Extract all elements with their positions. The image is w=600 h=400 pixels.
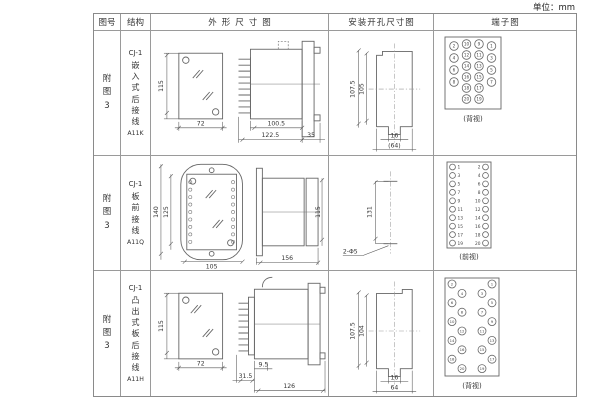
terminal-number: 8 bbox=[453, 79, 456, 84]
terminal-number: 3 bbox=[490, 55, 493, 60]
terminal-number: 6 bbox=[451, 300, 454, 305]
terminal-circle bbox=[483, 189, 489, 195]
header-fig-no: 图号 bbox=[94, 14, 121, 31]
terminal-number: 12 bbox=[460, 328, 465, 333]
structure-label: 凸出式板后接线 bbox=[132, 295, 140, 373]
terminal-number: 8 bbox=[478, 190, 481, 196]
terminal-number: 15 bbox=[480, 347, 485, 352]
dim-front-width: 105 bbox=[206, 263, 218, 270]
terminal-circle bbox=[450, 197, 456, 203]
terminal-circle bbox=[450, 172, 456, 178]
terminal-number: 2 bbox=[478, 164, 481, 170]
terminal-number: 16 bbox=[464, 74, 470, 79]
terminal-number: 5 bbox=[491, 300, 494, 305]
dim-flange-depth: 35 bbox=[307, 132, 315, 139]
terminal-number: 5 bbox=[458, 181, 461, 187]
terminal-number: 4 bbox=[461, 291, 464, 296]
terminal-circle bbox=[450, 189, 456, 195]
dim-overall-width: 64 bbox=[390, 384, 398, 391]
fig-no-label: 附图3 bbox=[103, 193, 112, 233]
header-mounting: 安装开孔尺寸图 bbox=[329, 14, 434, 31]
terminal-number: 16 bbox=[475, 223, 481, 229]
header-structure: 结构 bbox=[121, 14, 151, 31]
terminal-circle bbox=[450, 240, 456, 246]
dim-slot-width: 16 bbox=[390, 375, 398, 382]
terminal-number: 7 bbox=[490, 79, 493, 84]
terminal-number: 6 bbox=[453, 67, 456, 72]
dim-outer-height: 107.5 bbox=[350, 322, 357, 340]
terminal-number: 13 bbox=[490, 338, 495, 343]
terminal-number: 18 bbox=[450, 357, 455, 362]
dim-hole-distance: 131 bbox=[367, 206, 374, 218]
dim-overall-width: (64) bbox=[388, 142, 401, 149]
terminal-number: 11 bbox=[458, 206, 464, 212]
terminal-circle bbox=[450, 231, 456, 237]
fig-no-label: 附图3 bbox=[103, 314, 112, 354]
cell-mounting-row3: 107.5 104 16 64 bbox=[329, 271, 434, 396]
terminal-diagram-a11k: (背视) 2468101214161820911131517191357 bbox=[435, 31, 575, 156]
terminal-view-label: (背视) bbox=[462, 381, 482, 390]
cell-structure-row1: CJ-1 嵌入式后接线 A11K bbox=[121, 31, 151, 156]
dim-total-depth: 156 bbox=[281, 255, 293, 262]
dim-body-depth: 100.5 bbox=[267, 120, 285, 127]
dim-front-width: 72 bbox=[197, 360, 205, 367]
terminal-number: 19 bbox=[458, 240, 464, 246]
terminal-number: 17 bbox=[458, 232, 464, 238]
dim-body-height: 115 bbox=[315, 206, 322, 218]
terminal-number: 10 bbox=[464, 41, 470, 46]
terminal-circle bbox=[483, 164, 489, 170]
terminal-circle bbox=[450, 223, 456, 229]
terminal-number: 7 bbox=[481, 310, 484, 315]
terminal-number: 12 bbox=[464, 52, 470, 57]
terminal-view-label: (背视) bbox=[463, 114, 483, 123]
type-code-label: A11H bbox=[127, 376, 144, 383]
terminal-number: 4 bbox=[453, 55, 456, 60]
cell-outline-row3: 115 72 9.5 31. bbox=[151, 271, 329, 396]
terminal-circle bbox=[450, 181, 456, 187]
terminal-number: 15 bbox=[476, 74, 482, 79]
terminal-circle bbox=[483, 223, 489, 229]
terminal-number: 13 bbox=[458, 215, 464, 221]
fig-no-label: 附图3 bbox=[103, 73, 112, 113]
cell-mounting-row2: 131 2-Φ5 bbox=[329, 156, 434, 271]
terminal-number: 14 bbox=[464, 63, 470, 68]
terminal-circle bbox=[483, 240, 489, 246]
terminal-number: 1 bbox=[490, 43, 493, 48]
terminal-number: 2 bbox=[451, 281, 454, 286]
terminal-diagram-a11h: (背视) 2143658710912111413161518172019 bbox=[435, 271, 575, 396]
cell-outline-row2: 140 125 105 156 115 bbox=[151, 156, 329, 271]
mounting-drawing-a11h: 107.5 104 16 64 bbox=[329, 271, 433, 396]
terminal-number: 1 bbox=[491, 281, 494, 286]
dim-terminal-span: 125 bbox=[163, 206, 170, 218]
terminal-number: 9 bbox=[478, 41, 481, 46]
cell-terminal-row3: (背视) 2143658710912111413161518172019 bbox=[434, 271, 576, 396]
terminal-number: 19 bbox=[476, 96, 482, 101]
dim-offset: 9.5 bbox=[258, 361, 268, 368]
terminal-circle bbox=[450, 206, 456, 212]
cell-structure-row2: CJ-1 板前接线 A11Q bbox=[121, 156, 151, 271]
terminal-number: 11 bbox=[476, 52, 482, 57]
terminal-number: 12 bbox=[475, 206, 481, 212]
terminal-number: 20 bbox=[460, 366, 465, 371]
terminal-number: 7 bbox=[458, 190, 461, 196]
terminal-number: 11 bbox=[480, 328, 485, 333]
terminal-number: 16 bbox=[460, 347, 465, 352]
dim-hole-label: 2-Φ5 bbox=[343, 248, 358, 255]
spec-table: 图号 结构 外形尺寸图 安装开孔尺寸图 端子图 附图3 CJ-1 嵌入式后接线 … bbox=[93, 13, 577, 397]
cell-terminal-row1: (背视) 2468101214161820911131517191357 bbox=[434, 31, 576, 156]
mounting-drawing-a11k: 107.5 105 16 (64) bbox=[329, 31, 433, 156]
model-label: CJ-1 bbox=[129, 284, 143, 292]
cell-fig-no-row1: 附图3 bbox=[94, 31, 121, 156]
dim-slot-width: 16 bbox=[390, 132, 398, 139]
dim-inner-height: 104 bbox=[359, 325, 366, 337]
terminal-number: 5 bbox=[490, 67, 493, 72]
terminal-number: 20 bbox=[464, 96, 470, 101]
structure-label: 板前接线 bbox=[132, 191, 140, 236]
dim-front-height: 115 bbox=[158, 320, 165, 332]
terminal-number: 18 bbox=[464, 85, 470, 90]
outline-drawing-a11q: 140 125 105 156 115 bbox=[151, 156, 328, 271]
dim-body-depth: 126 bbox=[283, 383, 295, 390]
type-code-label: A11K bbox=[127, 130, 143, 137]
terminal-number: 15 bbox=[458, 223, 464, 229]
terminal-circle bbox=[483, 197, 489, 203]
dim-pin-depth: 31.5 bbox=[239, 373, 253, 380]
mounting-drawing-a11q: 131 2-Φ5 bbox=[329, 156, 433, 271]
terminal-number: 2 bbox=[453, 43, 456, 48]
terminal-number: 20 bbox=[475, 240, 481, 246]
terminal-circle bbox=[483, 206, 489, 212]
terminal-circle bbox=[450, 164, 456, 170]
terminal-number: 14 bbox=[450, 338, 455, 343]
terminal-number: 17 bbox=[476, 85, 482, 90]
terminal-circle bbox=[450, 214, 456, 220]
cell-mounting-row1: 107.5 105 16 (64) bbox=[329, 31, 434, 156]
terminal-number: 3 bbox=[481, 291, 484, 296]
header-terminal: 端子图 bbox=[434, 14, 576, 31]
dim-front-height: 115 bbox=[158, 80, 165, 92]
dim-front-width: 72 bbox=[197, 120, 205, 127]
cell-fig-no-row2: 附图3 bbox=[94, 156, 121, 271]
terminal-number: 10 bbox=[475, 198, 481, 204]
unit-label: 单位：mm bbox=[533, 1, 575, 13]
model-label: CJ-1 bbox=[129, 180, 143, 188]
terminal-number: 17 bbox=[490, 357, 495, 362]
terminal-circle bbox=[483, 181, 489, 187]
terminal-number: 4 bbox=[478, 173, 481, 179]
terminal-diagram-a11q: (前视) 1357911131517192468101214161820 bbox=[435, 156, 575, 271]
terminal-number: 8 bbox=[461, 310, 464, 315]
dim-outer-height: 107.5 bbox=[350, 80, 357, 98]
terminal-view-label: (前视) bbox=[459, 252, 479, 261]
terminal-circle bbox=[483, 172, 489, 178]
cell-structure-row3: CJ-1 凸出式板后接线 A11H bbox=[121, 271, 151, 396]
dim-front-height: 140 bbox=[153, 206, 160, 218]
terminal-number: 1 bbox=[458, 164, 461, 170]
terminal-number: 19 bbox=[480, 366, 485, 371]
outline-drawing-a11h: 115 72 9.5 31. bbox=[151, 271, 328, 396]
terminal-number: 9 bbox=[491, 319, 494, 324]
cell-fig-no-row3: 附图3 bbox=[94, 271, 121, 396]
dim-total-depth: 122.5 bbox=[262, 132, 280, 139]
cell-outline-row1: 115 72 100.5 122.5 bbox=[151, 31, 329, 156]
terminal-number: 9 bbox=[458, 198, 461, 204]
terminal-number: 10 bbox=[450, 319, 455, 324]
dim-inner-height: 105 bbox=[359, 83, 366, 95]
terminal-circle bbox=[483, 214, 489, 220]
terminal-circle bbox=[483, 231, 489, 237]
cell-terminal-row2: (前视) 1357911131517192468101214161820 bbox=[434, 156, 576, 271]
terminal-number: 3 bbox=[458, 173, 461, 179]
structure-label: 嵌入式后接线 bbox=[132, 60, 140, 127]
terminal-number: 6 bbox=[478, 181, 481, 187]
terminal-number: 13 bbox=[476, 63, 482, 68]
header-outline: 外形尺寸图 bbox=[151, 14, 329, 31]
model-label: CJ-1 bbox=[129, 49, 143, 57]
terminal-number: 18 bbox=[475, 232, 481, 238]
outline-drawing-a11k: 115 72 100.5 122.5 bbox=[151, 31, 328, 156]
type-code-label: A11Q bbox=[127, 239, 144, 246]
terminal-number: 14 bbox=[475, 215, 481, 221]
